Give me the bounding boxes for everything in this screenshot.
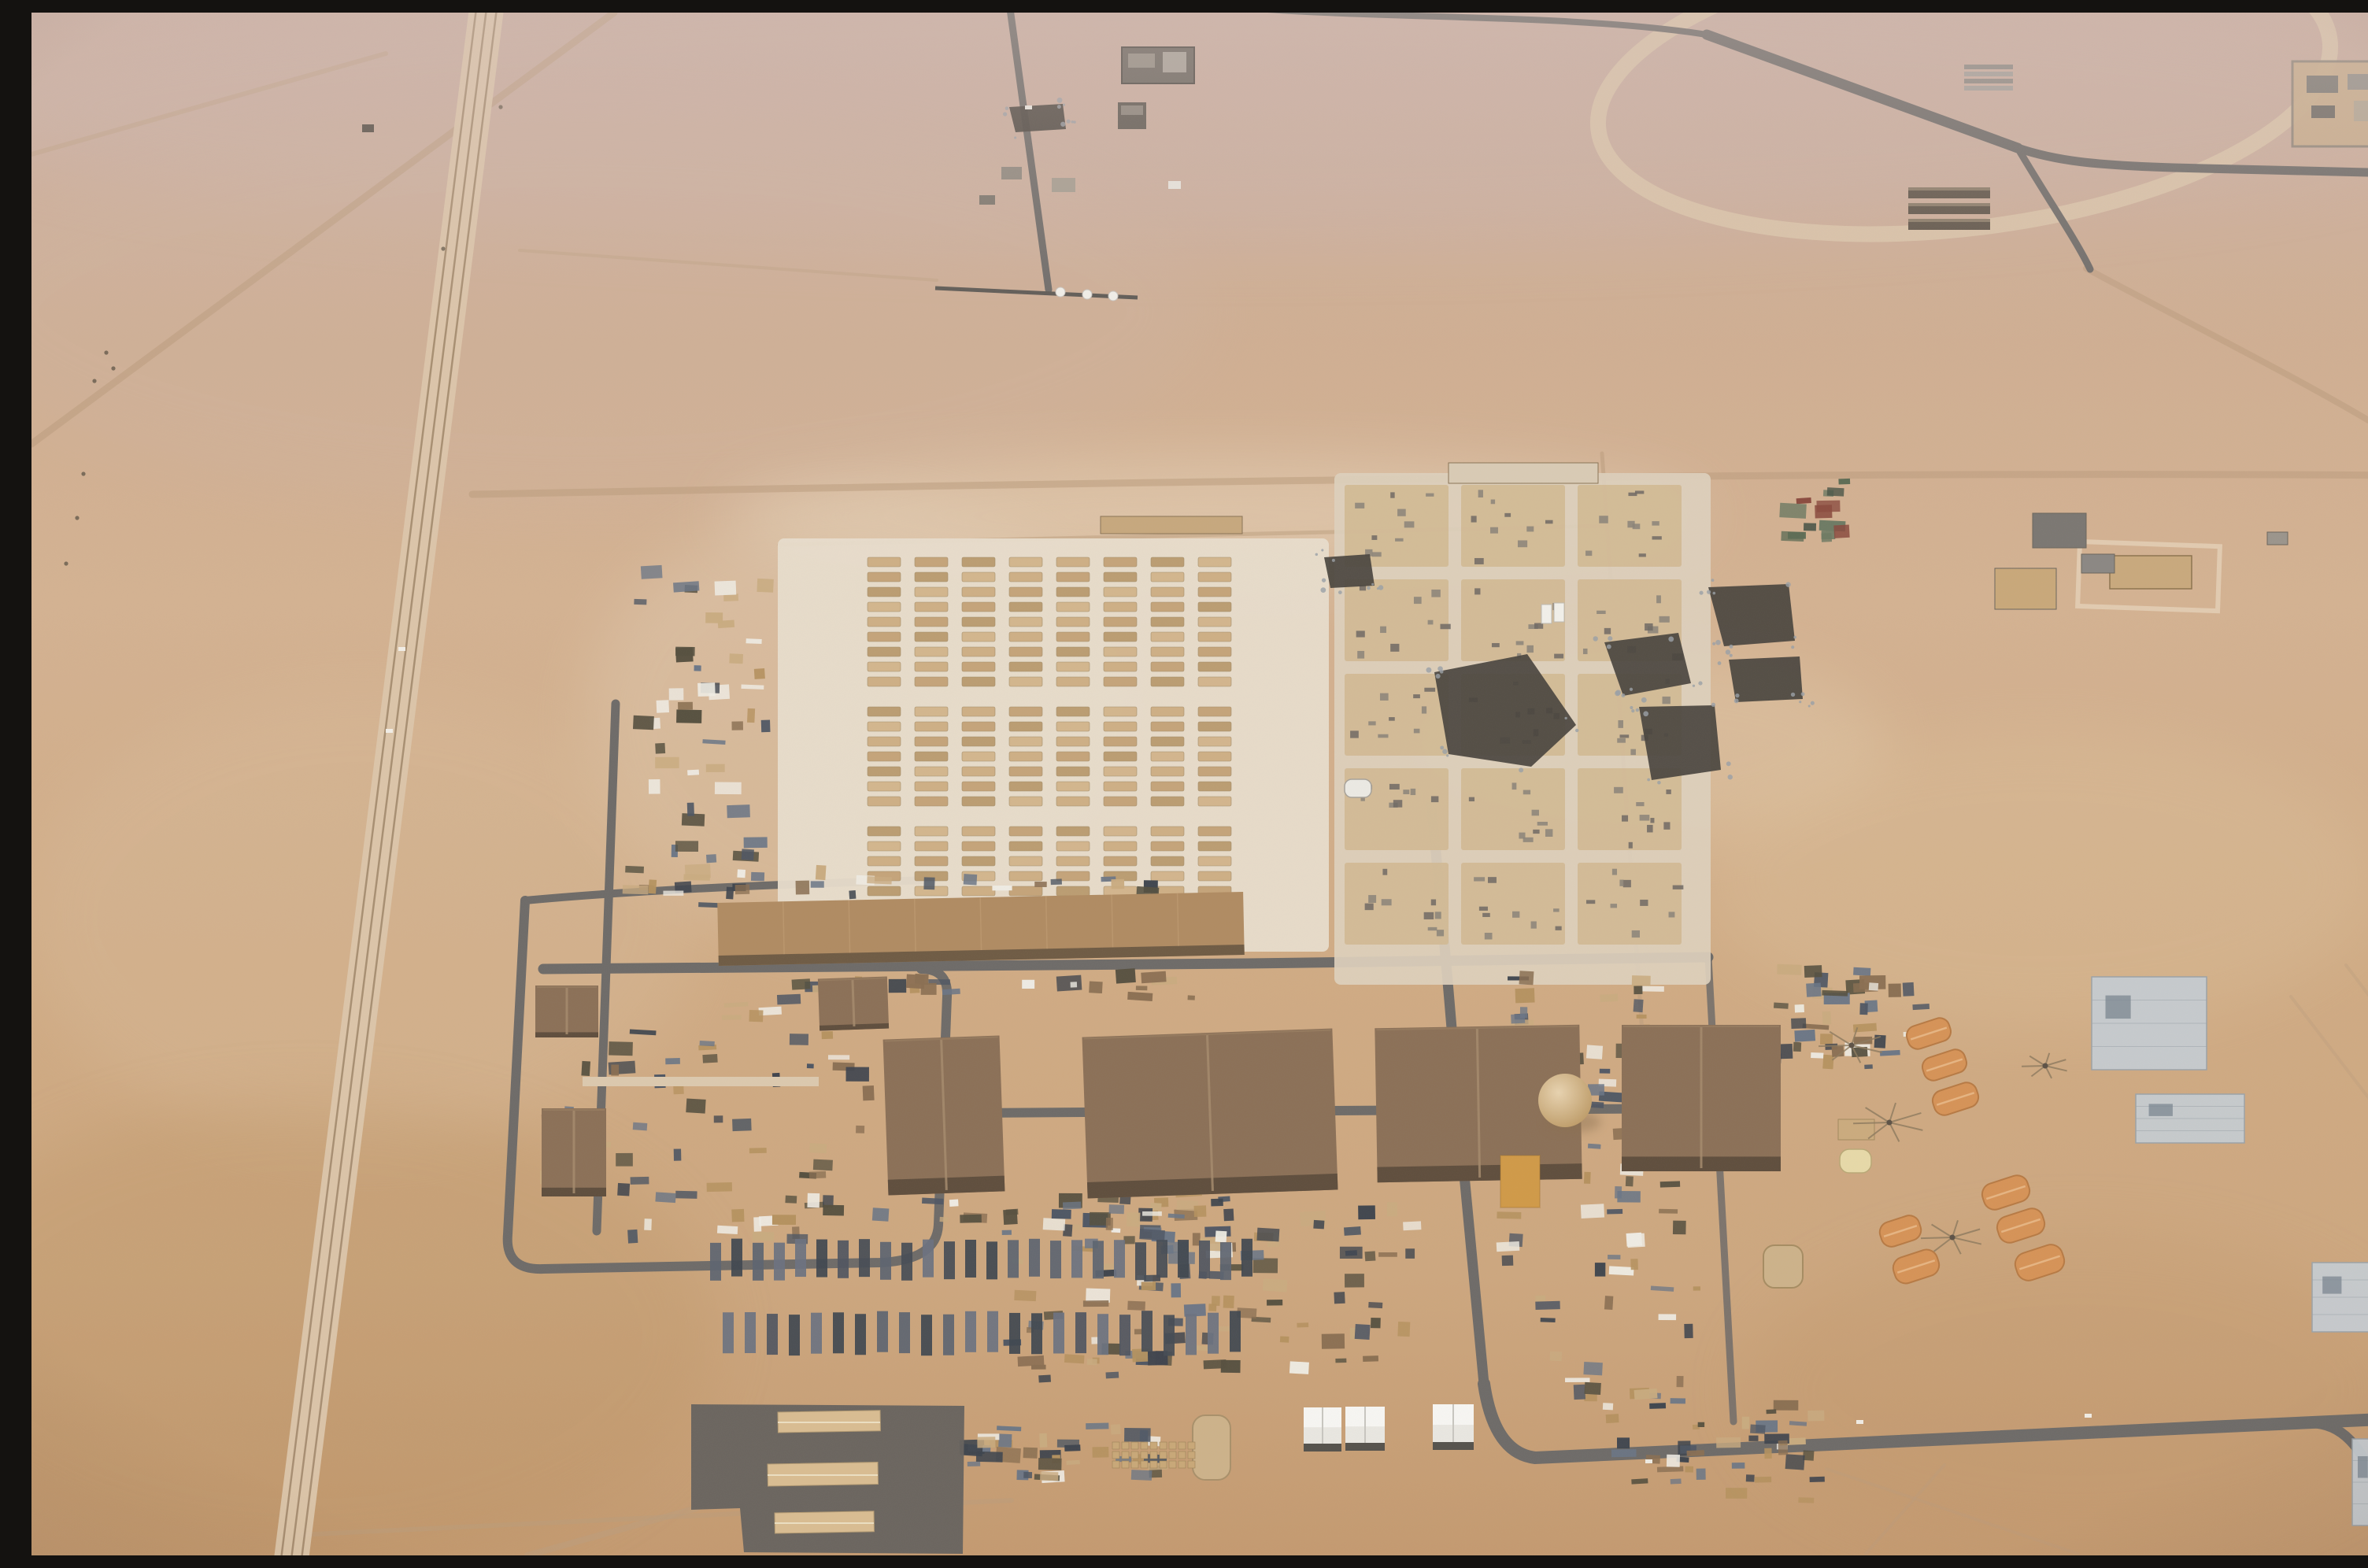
aerial-photograph-desert-base [31,13,2368,1555]
photo-layers [31,13,2368,1555]
desert-base-scene [31,13,2368,1555]
film-grain [31,13,2368,1555]
